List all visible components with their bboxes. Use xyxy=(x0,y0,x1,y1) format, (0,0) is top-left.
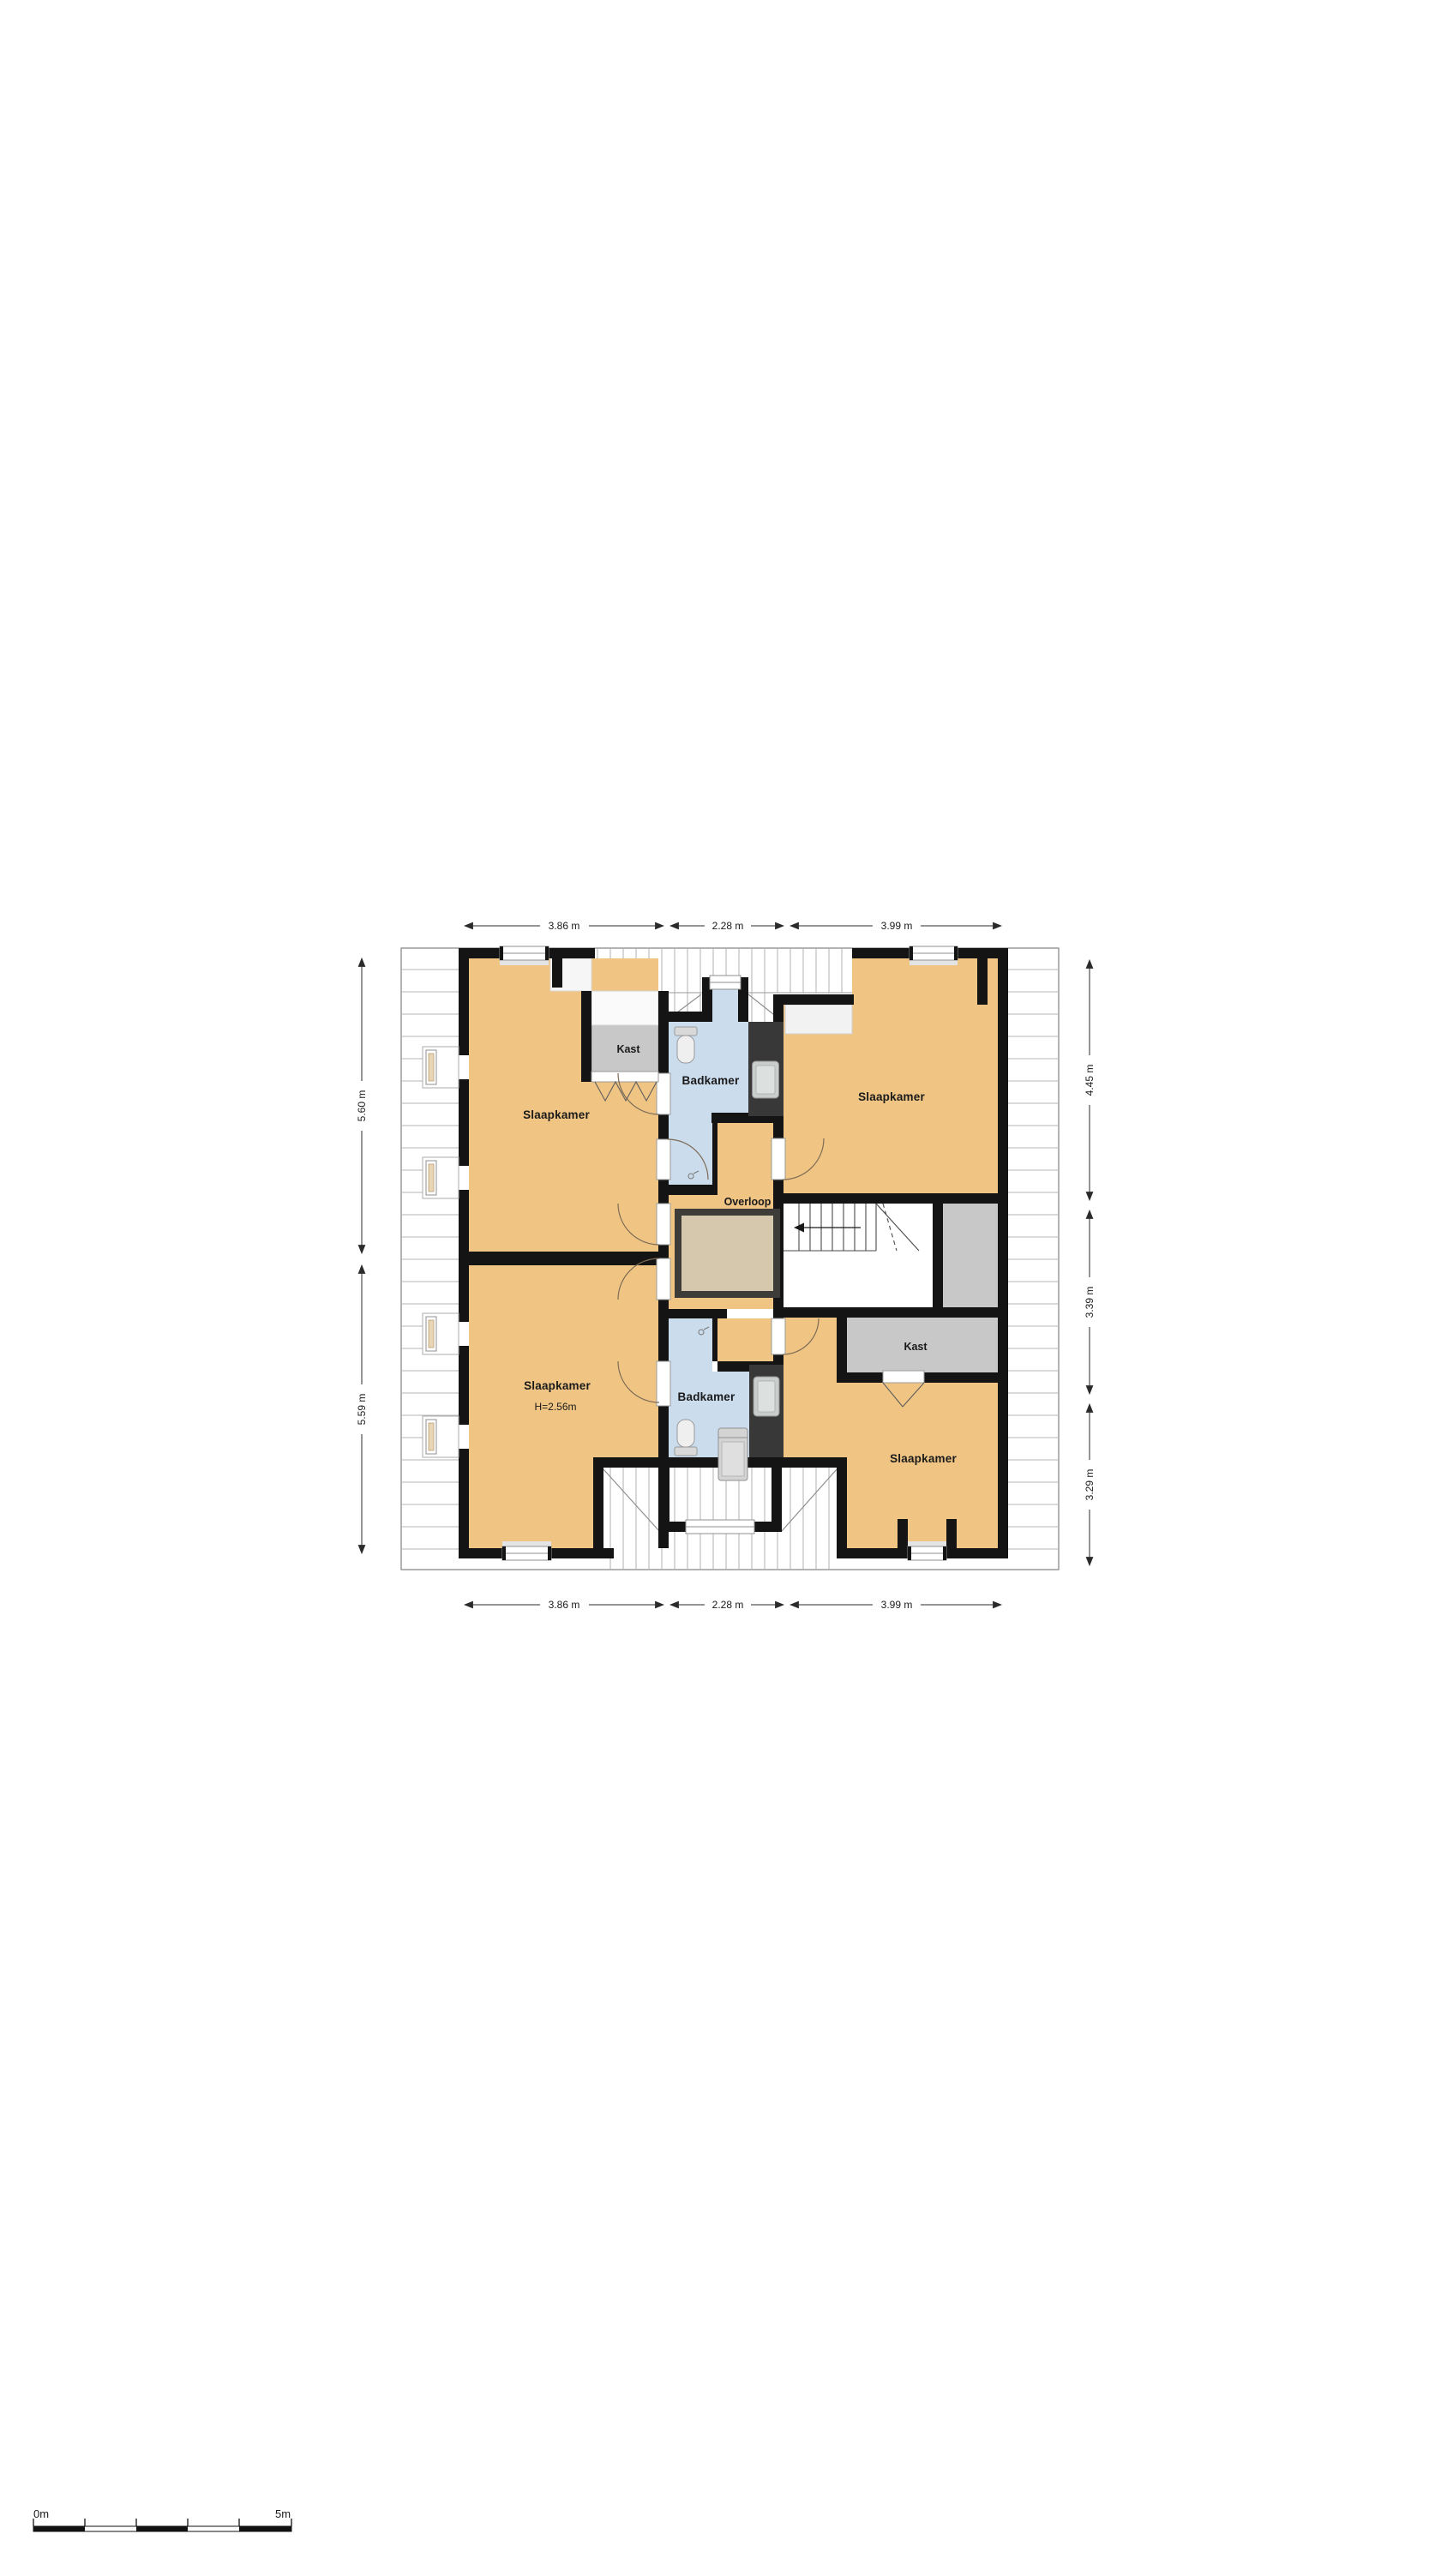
dim-right-1: 4.45 m xyxy=(1084,1065,1096,1096)
dim-left-2: 5.59 m xyxy=(356,1394,368,1426)
label-badkamer-bottom: Badkamer xyxy=(678,1390,736,1403)
dim-top-2: 2.28 m xyxy=(712,920,744,932)
sill-top-right-room xyxy=(785,1005,852,1034)
bay-window xyxy=(423,1416,459,1457)
void-opening xyxy=(678,1212,777,1294)
label-slaapkamer-tr: Slaapkamer xyxy=(858,1090,925,1103)
dim-right-3: 3.29 m xyxy=(1084,1469,1096,1501)
bay-window xyxy=(423,1047,459,1088)
toilet-icon-top xyxy=(675,1027,697,1063)
window-dormer-bottom xyxy=(686,1520,754,1534)
shower-bottom xyxy=(749,1365,784,1457)
dim-bottom-1: 3.86 m xyxy=(549,1599,580,1611)
stair-hall xyxy=(784,1204,933,1307)
roof-hatch-bottom-center xyxy=(603,1468,837,1570)
page-canvas: { "floorplan": { "room_labels": { "slaap… xyxy=(0,0,1447,2572)
bay-window xyxy=(423,1313,459,1354)
scale-bar-start-label: 0m xyxy=(33,2507,49,2520)
label-badkamer-top: Badkamer xyxy=(682,1074,740,1087)
kast-top-sill xyxy=(591,991,658,1025)
label-slaapkamer-br: Slaapkamer xyxy=(890,1452,957,1465)
window-dormer-top xyxy=(710,976,741,989)
washer-icon xyxy=(718,1428,748,1480)
window-bottom-left xyxy=(502,1541,551,1560)
roof-hatch-right xyxy=(1008,948,1059,1570)
label-slaapkamer-tl: Slaapkamer xyxy=(523,1108,590,1121)
window-bottom-right xyxy=(908,1541,946,1560)
dim-right-2: 3.39 m xyxy=(1084,1287,1096,1318)
dim-top-3: 3.99 m xyxy=(881,920,913,932)
scale-bar-end-label: 5m xyxy=(275,2507,291,2520)
label-slaapkamer-bl-height: H=2.56m xyxy=(534,1401,576,1413)
dim-bottom-2: 2.28 m xyxy=(712,1599,744,1611)
window-top-right xyxy=(910,946,958,965)
label-kast-right: Kast xyxy=(904,1341,928,1353)
dim-left-1: 5.60 m xyxy=(356,1090,368,1122)
label-overloop: Overloop xyxy=(724,1196,772,1208)
dim-bottom-3: 3.99 m xyxy=(881,1599,913,1611)
floorplan-svg: Slaapkamer Slaapkamer Slaapkamer H=2.56m… xyxy=(0,0,1447,2572)
kast-right-strip xyxy=(943,1204,998,1307)
toilet-icon-bottom xyxy=(675,1420,697,1456)
shower-top xyxy=(748,1022,784,1116)
scale-bar: 0m 5m xyxy=(33,2507,291,2531)
label-slaapkamer-bl: Slaapkamer xyxy=(524,1379,591,1392)
roof-hatch-left xyxy=(401,948,459,1570)
dim-top-1: 3.86 m xyxy=(549,920,580,932)
window-top-left xyxy=(500,946,549,965)
bay-window xyxy=(423,1157,459,1198)
label-kast-top: Kast xyxy=(616,1043,640,1055)
